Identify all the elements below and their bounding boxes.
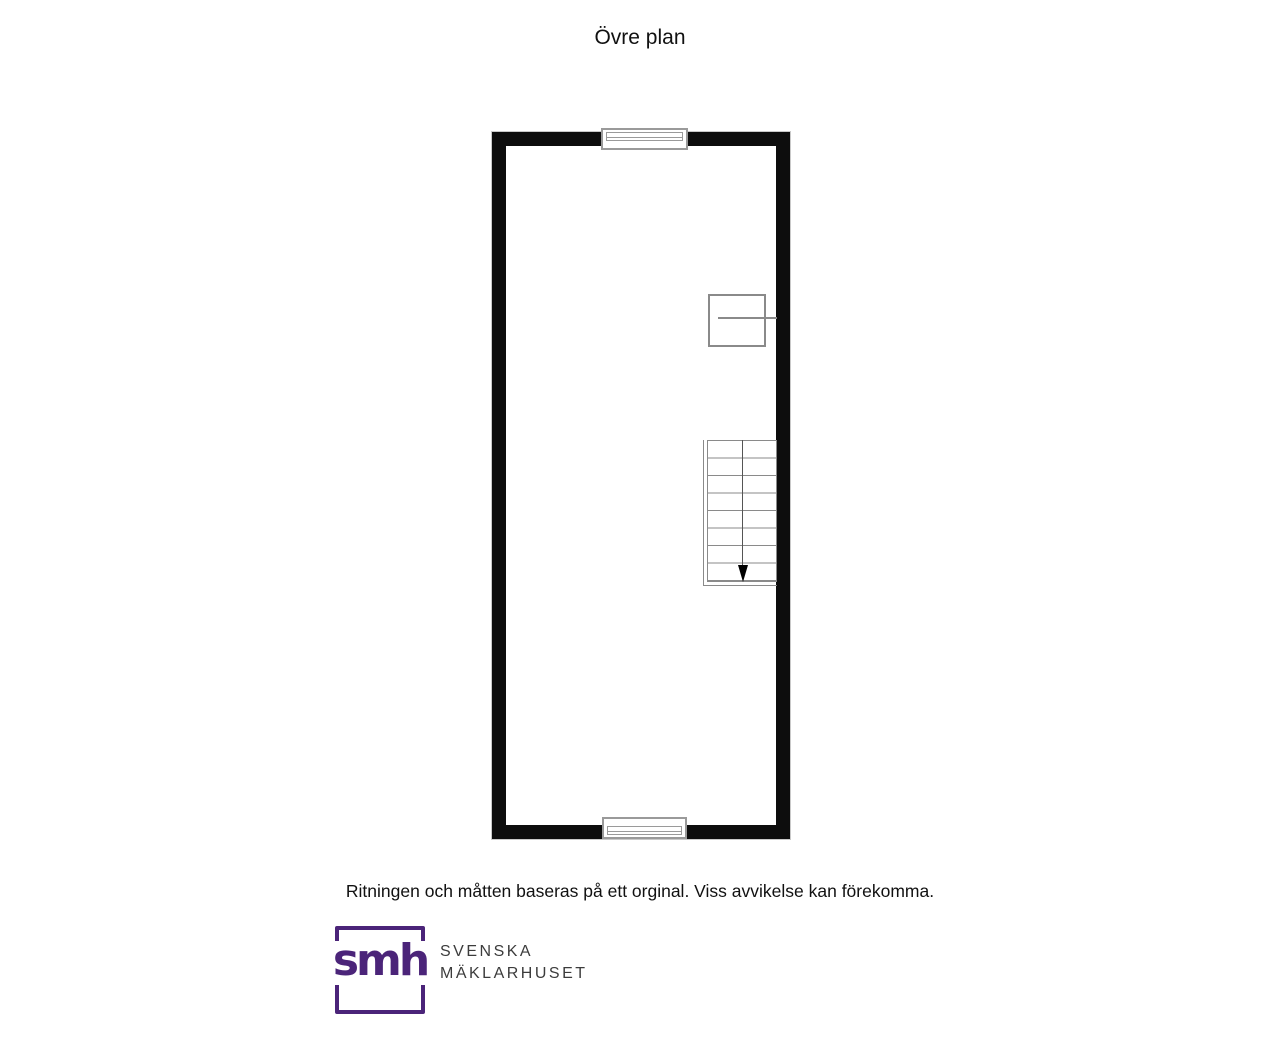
top-window: [601, 128, 688, 150]
stair-arrow-down-icon: [738, 565, 748, 582]
smh-logo: smh: [335, 926, 425, 1014]
bottom-window: [602, 817, 687, 839]
page-title: Övre plan: [0, 26, 1280, 50]
bottom-window-sash: [607, 826, 682, 835]
closet-box: [708, 294, 766, 347]
top-window-sash: [606, 132, 683, 141]
logo-wordmark: SVENSKA MÄKLARHUSET: [440, 941, 588, 985]
logo-wordmark-line2: MÄKLARHUSET: [440, 963, 588, 985]
logo-monogram: smh: [330, 941, 430, 985]
stair-direction-line: [742, 440, 743, 567]
closet-line: [718, 317, 777, 319]
logo-wordmark-line1: SVENSKA: [440, 941, 588, 963]
disclaimer-text: Ritningen och måtten baseras på ett orgi…: [0, 881, 1280, 902]
